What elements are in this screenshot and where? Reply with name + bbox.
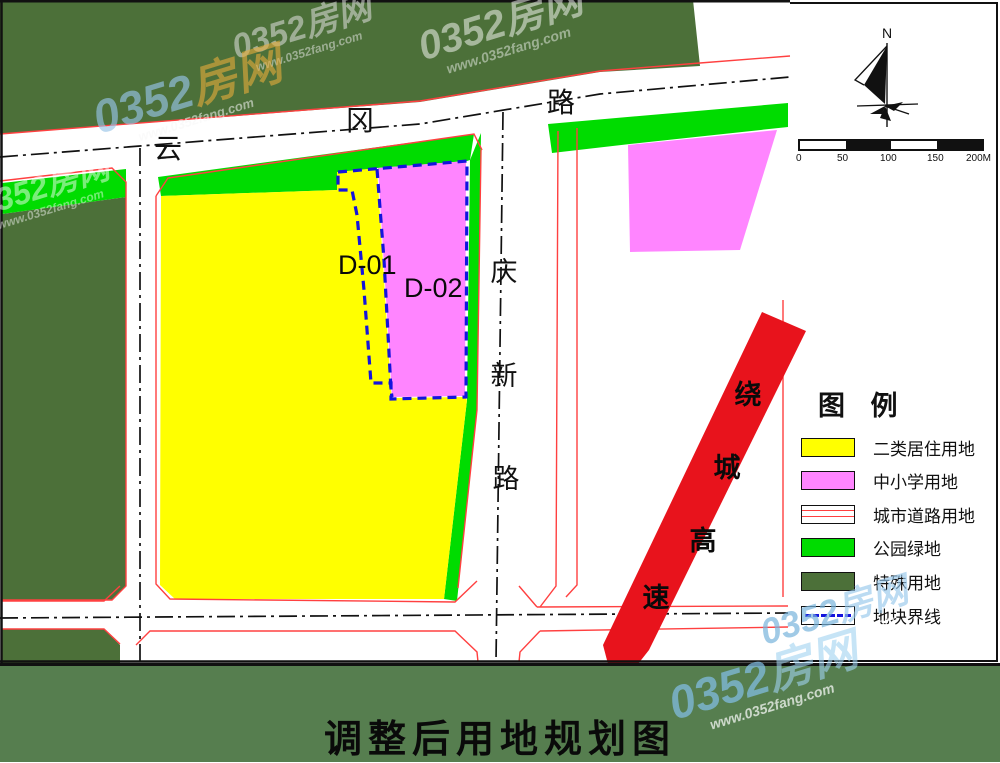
green-strip-mid-north: [158, 134, 474, 196]
yungang-char-2: 冈: [346, 105, 374, 136]
watermark: 0352房网 www.0352fang.com: [228, 0, 379, 78]
scale-segment: [937, 141, 983, 149]
page-title: 调整后用地规划图: [0, 708, 1000, 763]
scale-bar: 0 50 100 150 200M: [798, 139, 984, 169]
yungang-char-3: 路: [547, 87, 575, 118]
yungang-road-south-edge-west: [0, 168, 126, 600]
special-use-parcels: [0, 0, 700, 663]
map-sidebar: N 0 50 100 150 200M 图 例 二类居住用地 中小学用地 城市道…: [788, 2, 998, 662]
footer-band: 调整后用地规划图: [0, 663, 1000, 762]
watermark-url: www.0352fang.com: [101, 85, 291, 155]
legend-swatch-school: [801, 471, 855, 490]
watermark: 0352房网 www.0352fang.com: [413, 0, 591, 82]
legend-label: 二类居住用地: [855, 435, 975, 460]
map-background: [0, 0, 790, 663]
legend-item-boundary: 地块界线: [801, 605, 941, 625]
qingxin-centerline: [496, 112, 503, 662]
expressway-char-3: 高: [690, 525, 717, 556]
qingxin-west-edge: [458, 150, 481, 588]
road-centerlines: [0, 77, 790, 662]
school-parcel-d02: [378, 161, 466, 397]
parcel-label-d02: D-02: [404, 273, 463, 303]
expressway-char-2: 城: [714, 453, 741, 483]
legend-item-road: 城市道路用地: [801, 504, 975, 524]
bottom-road-north-left: [2, 586, 120, 601]
legend-item-park: 公园绿地: [801, 537, 941, 557]
scale-tick: 100: [880, 153, 897, 164]
expressway-char-1: 绕: [735, 379, 762, 410]
legend-item-school: 中小学用地: [801, 470, 958, 490]
green-strip-northeast: [548, 103, 788, 153]
scale-segment: [891, 141, 937, 149]
yungang-centerline: [0, 77, 790, 157]
plot-boundary-outer: [338, 161, 467, 399]
school-parcels: [378, 130, 777, 397]
mid-parcel-west-south-outline: [156, 196, 477, 602]
expressway-char-4: 速: [643, 583, 670, 613]
expressway-labels: 绕 城 高 速: [643, 379, 762, 613]
qingxin-east-edge: [540, 131, 558, 607]
special-parcel-north: [0, 0, 700, 134]
bottom-road-south-left: [2, 629, 478, 662]
watermark-url: www.0352fang.com: [426, 19, 592, 82]
road-labels: 云 冈 路 庆 新 路: [154, 87, 575, 494]
legend-label: 地块界线: [855, 603, 941, 628]
yungang-char-1: 云: [154, 133, 182, 164]
scale-bar-segments: [798, 139, 984, 151]
mid-parcel-outline: [156, 134, 482, 196]
map-frame: [0, 0, 790, 663]
north-arrow: N: [837, 22, 937, 137]
scale-segment: [800, 141, 846, 149]
scale-tick: 200M: [966, 153, 991, 164]
north-arrow-point-east: [885, 102, 903, 111]
expressway-band: [603, 312, 806, 663]
plot-boundary-divider: [377, 169, 392, 397]
park-green-strips: [2, 103, 788, 601]
legend-title: 图 例: [818, 384, 907, 423]
east-parcel-line-1: [566, 128, 577, 597]
legend-swatch-park: [801, 538, 855, 557]
legend-item-residential: 二类居住用地: [801, 437, 975, 457]
legend-swatch-residential: [801, 438, 855, 457]
watermark: 0352房网 www.0352fang.com: [87, 39, 291, 155]
green-strip-west: [2, 169, 126, 214]
watermark-brand: 0352房网: [413, 0, 587, 69]
legend-label: 城市道路用地: [855, 502, 975, 527]
scale-segment: [846, 141, 892, 149]
north-label: N: [882, 25, 892, 41]
scale-tick: 0: [796, 153, 802, 164]
bottom-road-south-right: [519, 627, 788, 662]
north-arrow-sail: [864, 46, 887, 104]
special-parcel-southwest: [2, 629, 120, 663]
planning-map: 云 冈 路 庆 新 路 绕 城 高 速 D-01 D-02: [0, 0, 810, 663]
watermark: 0352房网 www.0352fang.com: [0, 151, 117, 235]
legend-label: 特殊用地: [855, 569, 941, 594]
watermark-brand-cn: 房网: [184, 37, 287, 114]
parcel-label-d01: D-01: [338, 250, 397, 280]
watermark-url: www.0352fang.com: [0, 183, 117, 235]
legend-swatch-boundary: [801, 606, 855, 625]
legend-item-special: 特殊用地: [801, 571, 941, 591]
special-parcel-west: [2, 197, 126, 600]
watermark-brand: 0352房网: [0, 149, 113, 223]
yungang-road-north-edge: [0, 56, 790, 134]
school-parcel-northeast: [628, 130, 777, 252]
green-strip-east-of-yellow: [444, 133, 481, 601]
parcel-labels: D-01 D-02: [338, 250, 463, 303]
bottom-road-centerline: [0, 613, 788, 618]
qingxin-char-1: 庆: [491, 257, 518, 287]
watermark-url: www.0352fang.com: [239, 24, 380, 78]
scale-tick: 50: [837, 153, 848, 164]
road-edge-lines: [0, 56, 790, 662]
qingxin-char-2: 新: [491, 361, 518, 391]
legend-label: 公园绿地: [855, 535, 941, 560]
scale-ticks: 0 50 100 150 200M: [798, 151, 984, 165]
planning-map-page: { "colors": { "residential": "#FFFF00", …: [0, 0, 1000, 762]
watermark-brand-number: 0352: [87, 64, 200, 144]
residential-parcel: [160, 168, 467, 599]
bottom-road-north-right: [519, 586, 788, 607]
watermark-brand: 0352房网: [227, 0, 375, 66]
legend-swatch-special: [801, 572, 855, 591]
qingxin-char-3: 路: [493, 464, 520, 494]
scale-tick: 150: [927, 153, 944, 164]
legend-label: 中小学用地: [855, 468, 958, 493]
plot-boundary: [338, 161, 467, 399]
legend-swatch-road: [801, 505, 855, 524]
